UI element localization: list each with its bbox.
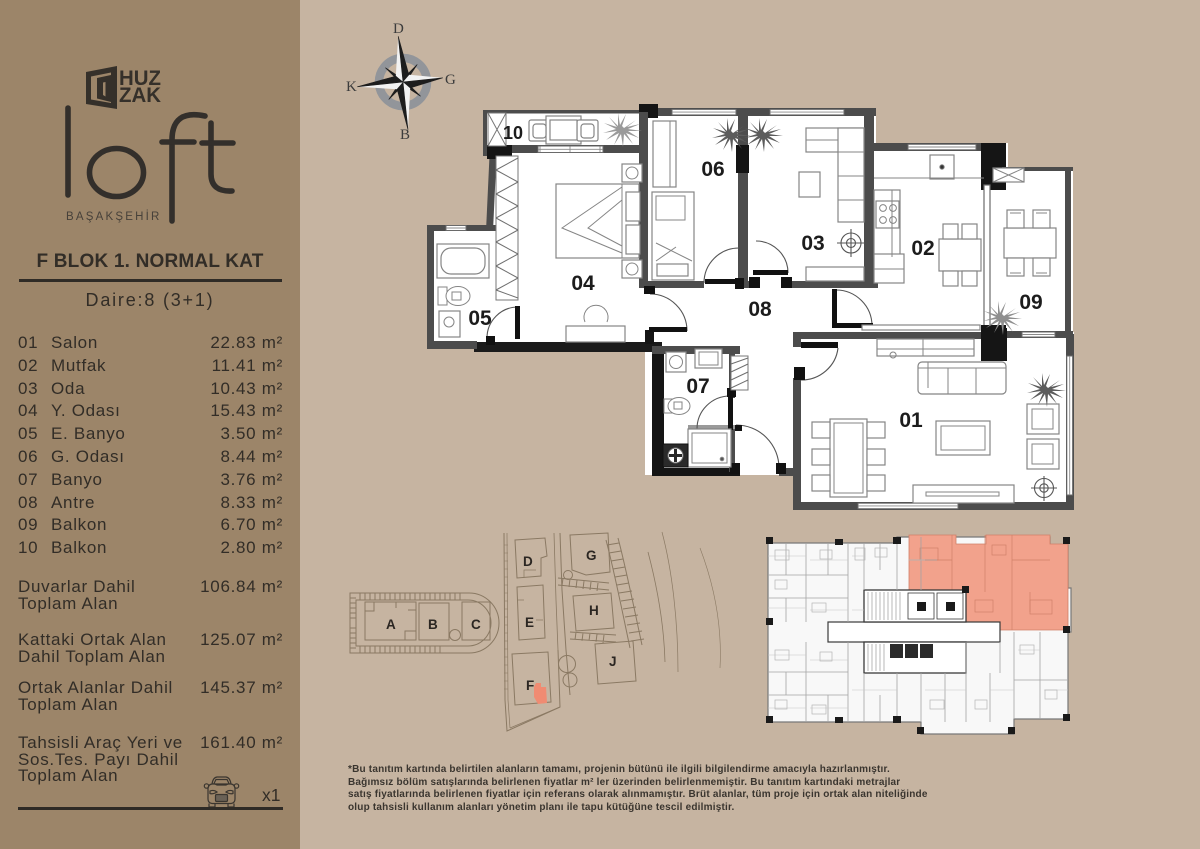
svg-text:08: 08 [748,298,772,321]
svg-text:02: 02 [911,237,934,260]
svg-text:B: B [428,617,438,632]
svg-text:06: 06 [701,158,724,181]
svg-text:D: D [393,21,404,37]
svg-text:04: 04 [571,272,595,295]
svg-text:05: 05 [468,307,492,330]
svg-text:C: C [471,617,481,632]
svg-text:F: F [526,678,534,693]
svg-text:09: 09 [1019,291,1042,314]
svg-text:G: G [586,548,597,563]
svg-text:J: J [609,654,617,669]
svg-text:10: 10 [503,123,523,143]
svg-text:G: G [445,72,456,88]
svg-text:D: D [523,554,533,569]
svg-text:K: K [346,79,357,95]
svg-text:03: 03 [801,232,824,255]
svg-text:01: 01 [899,409,923,432]
svg-text:H: H [589,603,599,618]
svg-text:A: A [386,617,396,632]
svg-text:B: B [400,127,410,143]
svg-text:E: E [525,615,534,630]
svg-text:07: 07 [686,375,709,398]
